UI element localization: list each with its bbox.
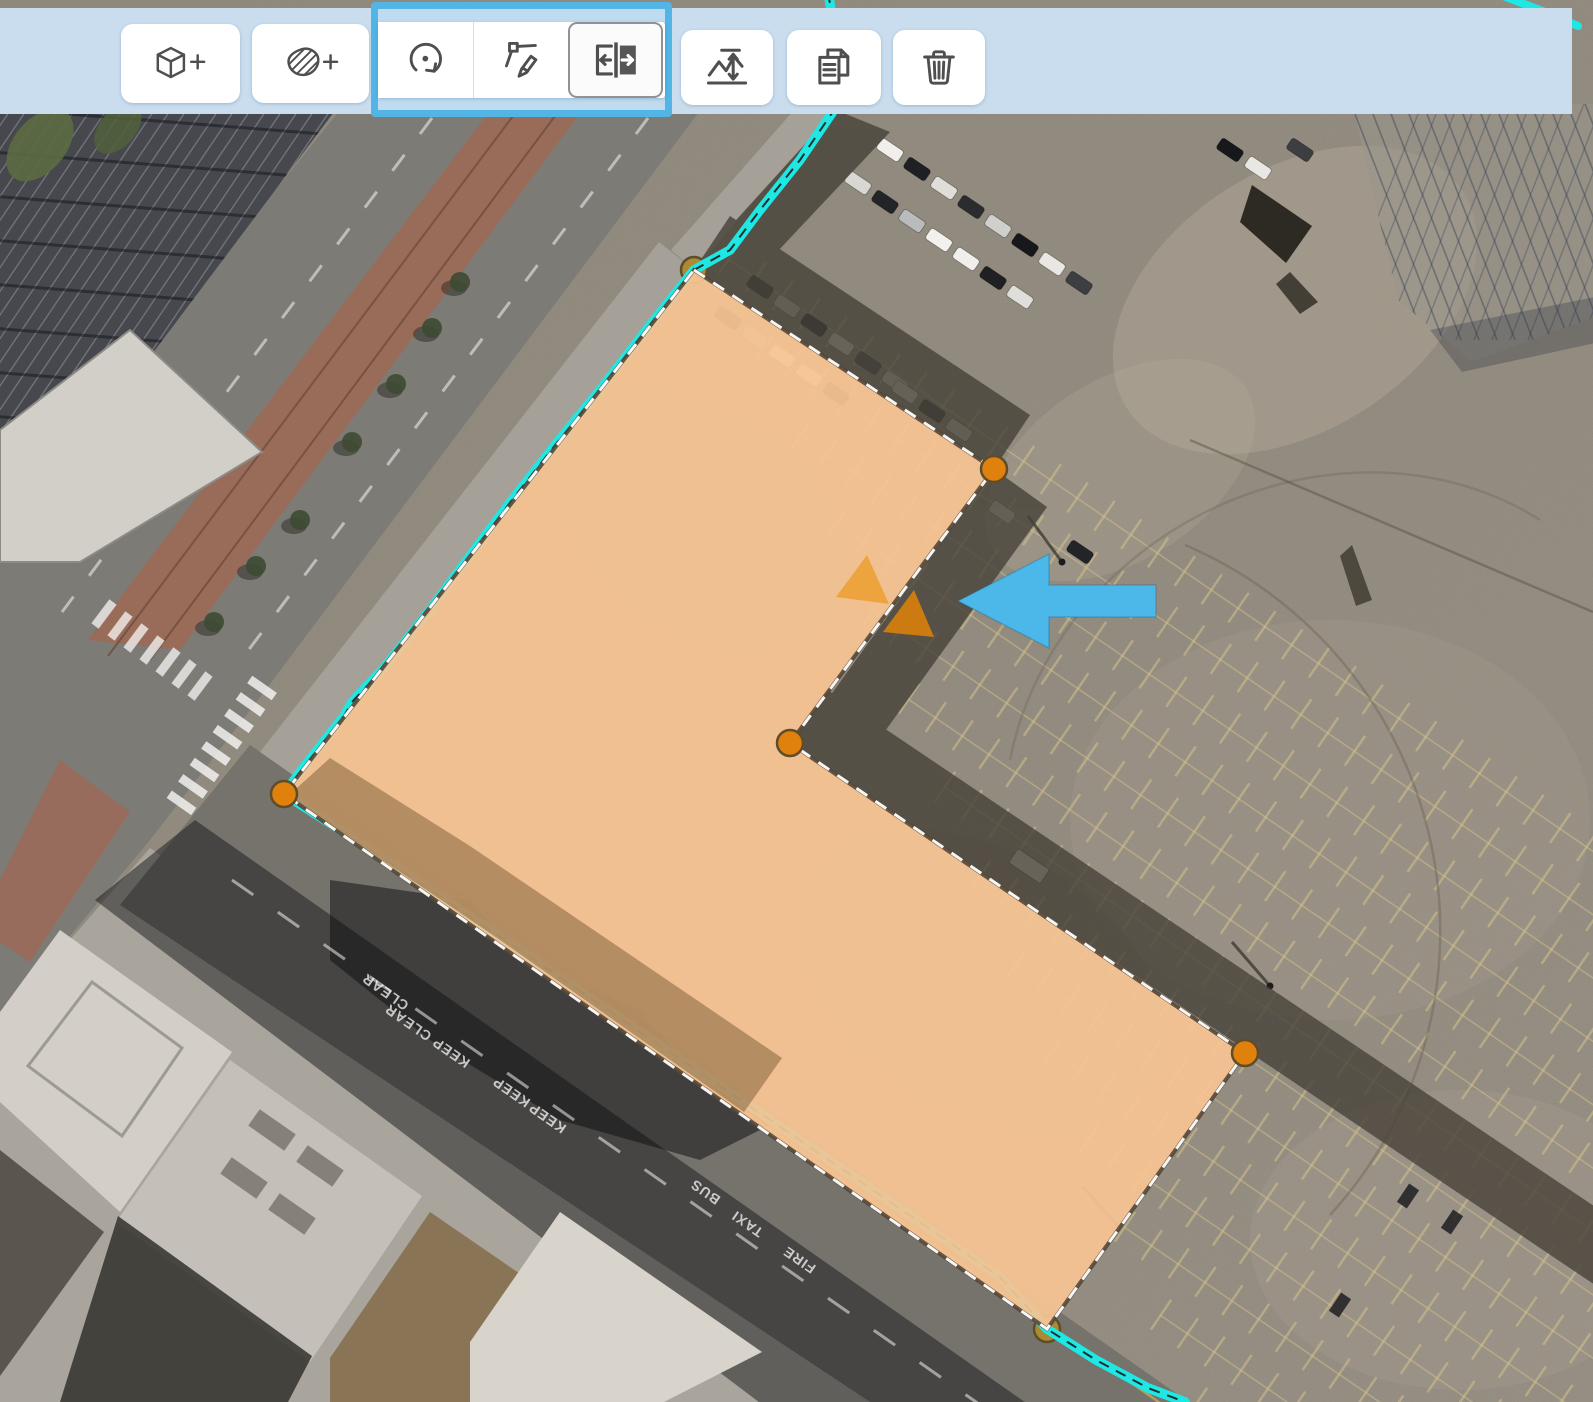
edit-tools-highlight-group <box>371 2 672 117</box>
rotate-tool-button[interactable] <box>378 22 473 98</box>
rotate-icon <box>404 38 448 82</box>
app-window: CLEARKEEP CLEARKEEPKEEPBUSTAXIFIRE <box>0 0 1593 1402</box>
vertex-handle[interactable] <box>981 456 1007 482</box>
offset-edges-icon <box>591 39 641 81</box>
vertex-pencil-icon <box>499 38 543 82</box>
copy-icon <box>811 45 857 91</box>
add-extrusion-button[interactable] <box>121 24 240 103</box>
offset-edges-tool-button[interactable] <box>568 22 663 98</box>
edit-vertices-tool-button[interactable] <box>473 22 568 98</box>
blob-plus-icon <box>282 44 340 84</box>
trash-icon <box>917 46 961 90</box>
vertex-handle[interactable] <box>271 781 297 807</box>
editor-toolbar <box>0 8 1572 114</box>
elevation-range-icon <box>704 45 750 91</box>
duplicate-button[interactable] <box>787 30 881 105</box>
vertex-handle[interactable] <box>1232 1040 1258 1066</box>
cube-plus-icon <box>152 44 210 84</box>
adjust-elevation-button[interactable] <box>681 30 773 105</box>
satellite-map-canvas[interactable]: CLEARKEEP CLEARKEEPKEEPBUSTAXIFIRE <box>0 0 1593 1402</box>
delete-button[interactable] <box>893 30 985 105</box>
add-surface-button[interactable] <box>252 24 369 103</box>
vertex-handle[interactable] <box>777 730 803 756</box>
